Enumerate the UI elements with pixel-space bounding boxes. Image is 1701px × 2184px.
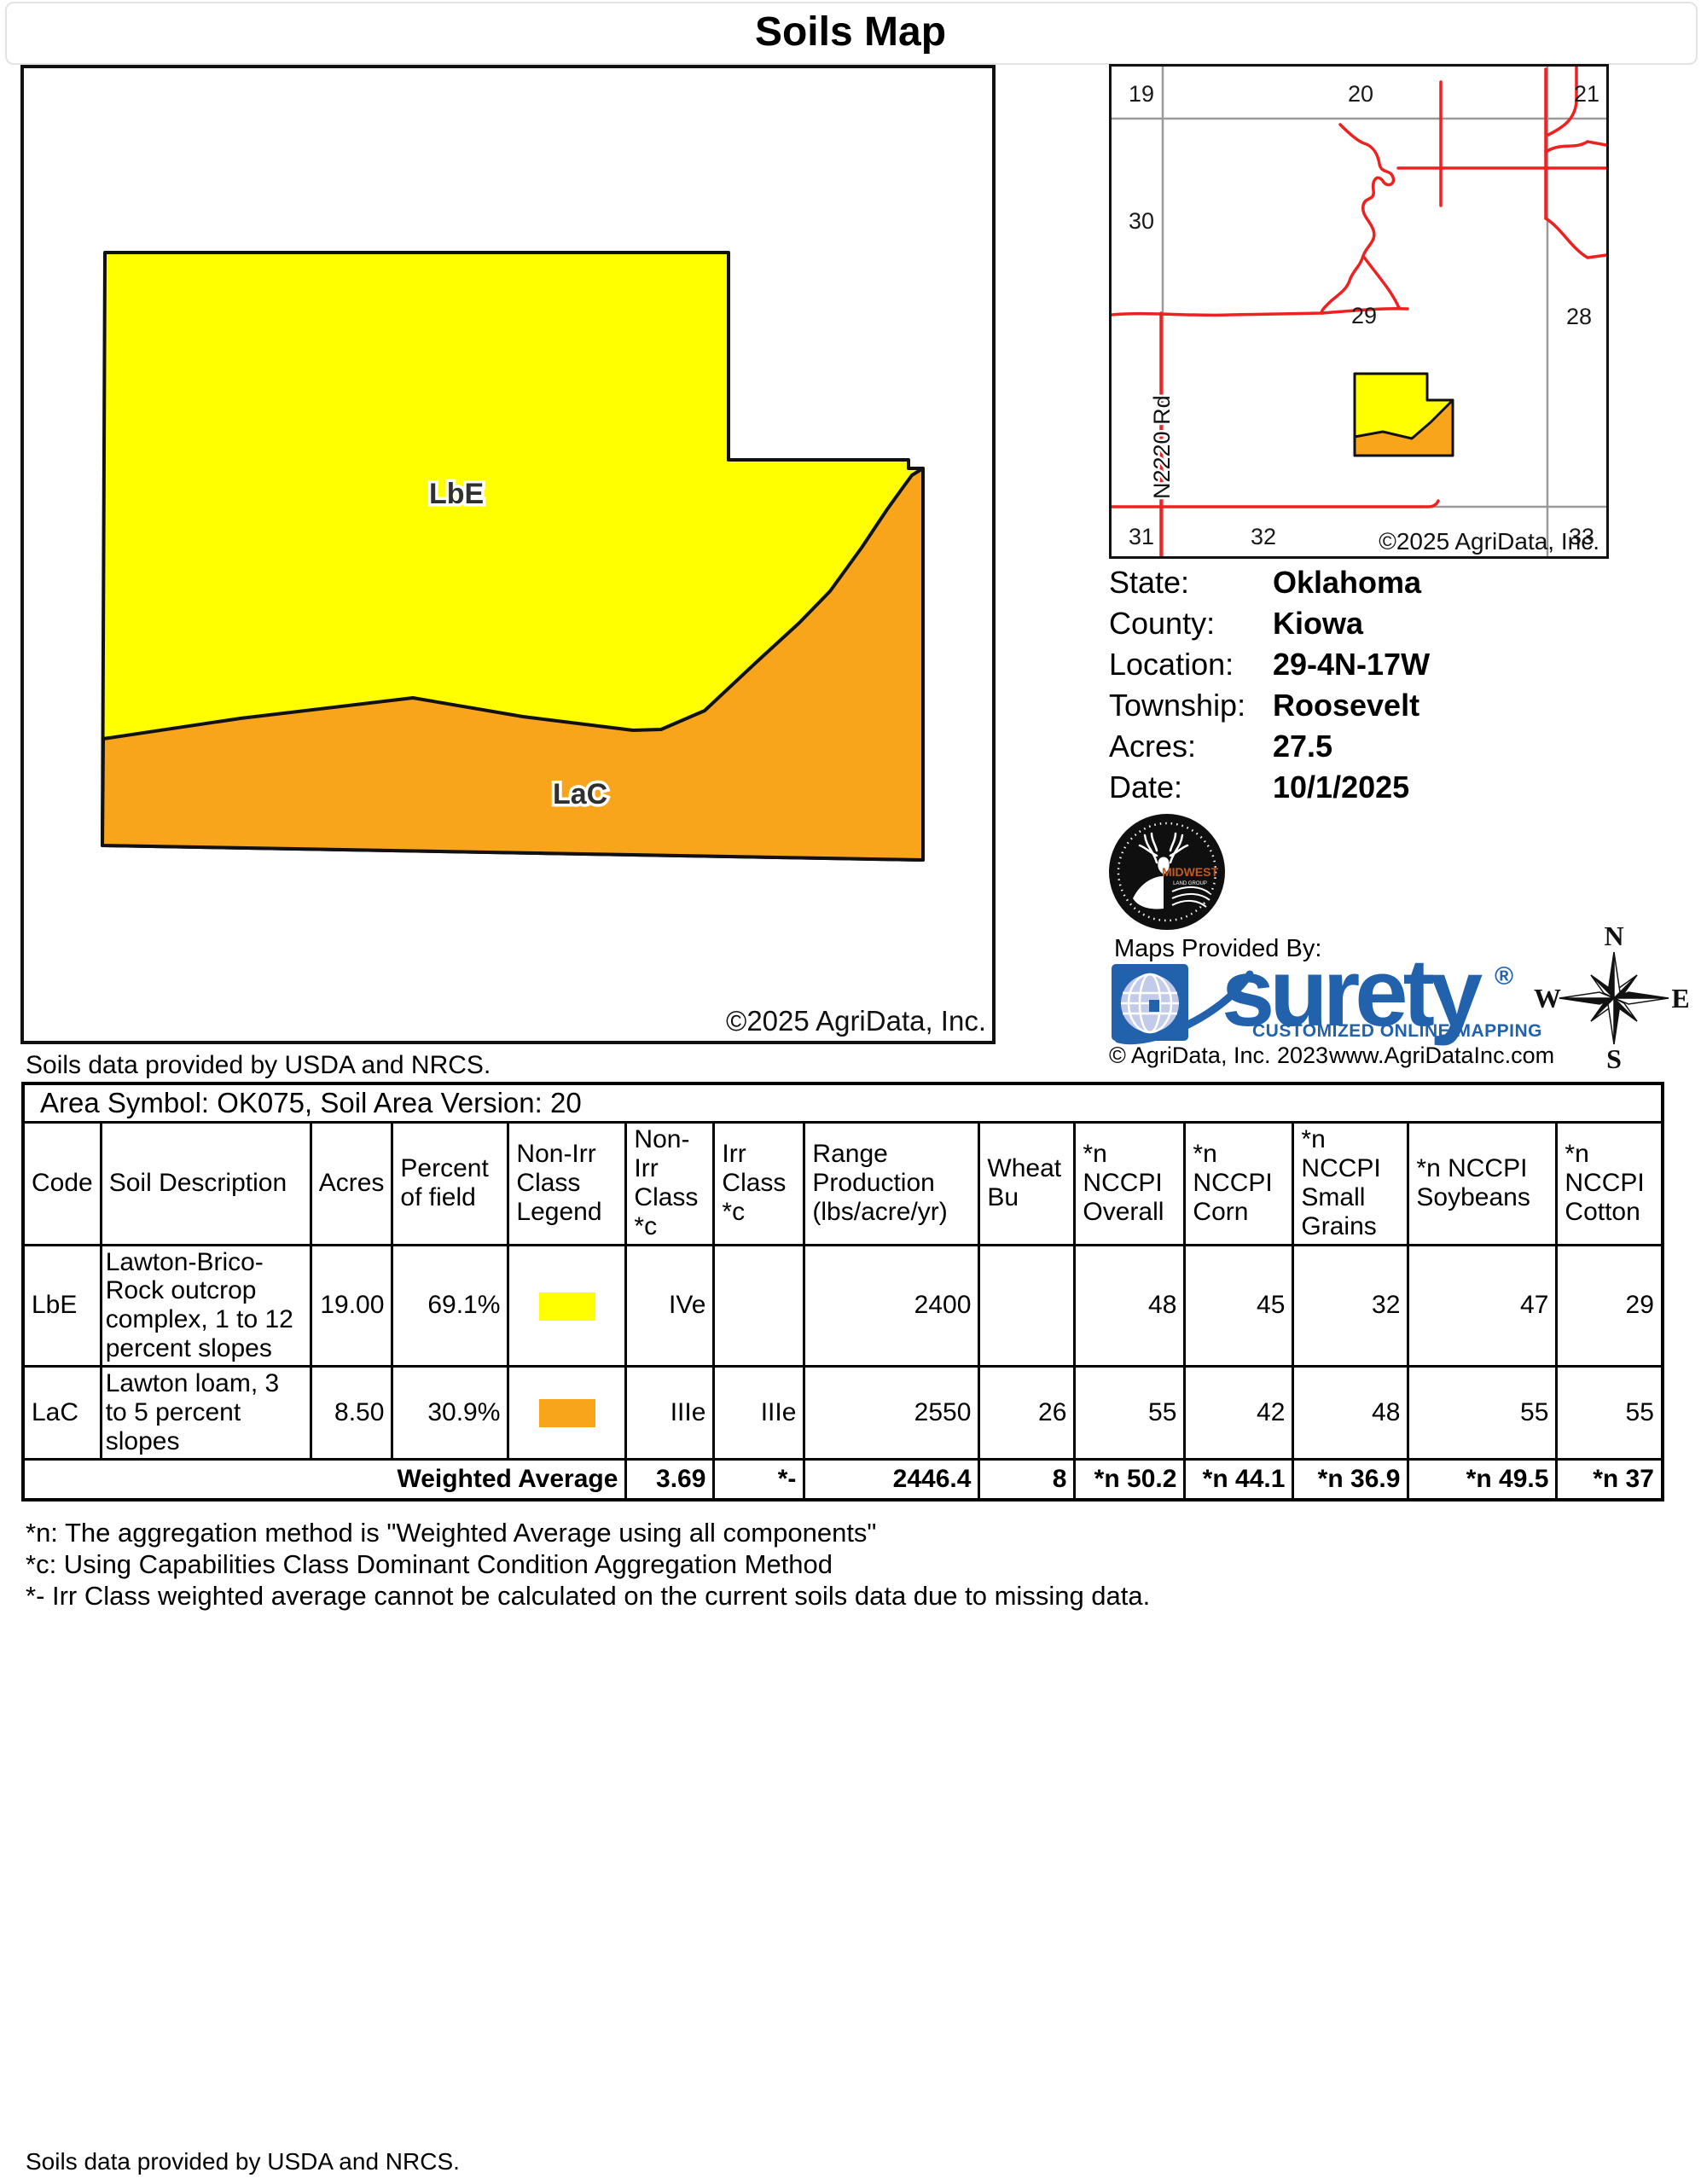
- weighted-average-label: Weighted Average: [23, 1459, 626, 1500]
- col-header-soil-description: Soil Description: [101, 1122, 311, 1245]
- legend-swatch-lac: [539, 1399, 595, 1427]
- cell-nccpi-soybeans: 47: [1408, 1245, 1557, 1367]
- col-header-percent: Percent of field: [392, 1122, 508, 1245]
- col-header-non-irr-class: Non-Irr Class *c: [626, 1122, 714, 1245]
- footnotes-block: *n: The aggregation method is "Weighted …: [26, 1517, 1150, 1612]
- cell-nccpi-small-grains: 32: [1293, 1245, 1408, 1367]
- col-header-wheat-bu: Wheat Bu: [979, 1122, 1075, 1245]
- section-21: 21: [1574, 81, 1599, 107]
- compass-w: W: [1534, 983, 1561, 1014]
- weighted-nccpi-corn: *n 44.1: [1185, 1459, 1293, 1500]
- inset-map-canvas: 19 20 21 30 29 28 31 32 33 N2220 Rd ©202…: [1112, 67, 1606, 556]
- col-header-legend: Non-Irr Class Legend: [508, 1122, 626, 1245]
- cell-code: LaC: [23, 1367, 101, 1460]
- compass-main-points: [1559, 952, 1669, 1044]
- section-19: 19: [1129, 81, 1154, 107]
- info-row-township: Township: Roosevelt: [1109, 688, 1604, 729]
- cell-nccpi-small-grains: 48: [1293, 1367, 1408, 1460]
- cell-percent: 69.1%: [392, 1245, 508, 1367]
- map-copyright: ©2025 AgriData, Inc.: [726, 1005, 986, 1037]
- weighted-average-row: Weighted Average 3.69 *- 2446.4 8 *n 50.…: [23, 1459, 1663, 1500]
- table-row-lbe: LbE Lawton-Brico-Rock outcrop complex, 1…: [23, 1245, 1663, 1367]
- col-header-code: Code: [23, 1122, 101, 1245]
- col-header-nccpi-overall: *n NCCPI Overall: [1075, 1122, 1185, 1245]
- info-label: County:: [1109, 606, 1273, 647]
- weighted-nccpi-cotton: *n 37: [1557, 1459, 1663, 1500]
- cell-non-irr-class: IIIe: [626, 1367, 714, 1460]
- col-header-range-production: Range Production (lbs/acre/yr): [804, 1122, 979, 1245]
- weighted-nccpi-overall: *n 50.2: [1075, 1459, 1185, 1500]
- weighted-wheat-bu: 8: [979, 1459, 1075, 1500]
- cell-irr-class: [714, 1245, 804, 1367]
- legend-swatch-lbe: [539, 1292, 595, 1321]
- agridata-url: www.AgriDataInc.com: [1329, 1043, 1554, 1069]
- col-header-nccpi-cotton: *n NCCPI Cotton: [1557, 1122, 1663, 1245]
- weighted-non-irr-class: 3.69: [626, 1459, 714, 1500]
- cell-percent: 30.9%: [392, 1367, 508, 1460]
- section-31: 31: [1129, 524, 1154, 549]
- section-28: 28: [1566, 304, 1592, 329]
- surety-registered-mark: ®: [1495, 962, 1513, 991]
- area-symbol-title: Area Symbol: OK075, Soil Area Version: 2…: [23, 1083, 1663, 1122]
- info-label: Acres:: [1109, 729, 1273, 770]
- soil-label-lbe: LbE: [429, 478, 484, 510]
- compass-n: N: [1604, 921, 1623, 951]
- info-row-date: Date: 10/1/2025: [1109, 770, 1604, 810]
- section-29: 29: [1351, 303, 1377, 328]
- table-row-lac: LaC Lawton loam, 3 to 5 percent slopes 8…: [23, 1367, 1663, 1460]
- info-value: 29-4N-17W: [1273, 647, 1430, 688]
- weighted-nccpi-soybeans: *n 49.5: [1408, 1459, 1557, 1500]
- info-value: Oklahoma: [1273, 565, 1421, 606]
- surety-tagline: CUSTOMIZED ONLINE MAPPING: [1252, 1021, 1542, 1042]
- col-header-nccpi-soybeans: *n NCCPI Soybeans: [1408, 1122, 1557, 1245]
- cell-description: Lawton loam, 3 to 5 percent slopes: [101, 1367, 311, 1460]
- compass-e: E: [1671, 983, 1689, 1014]
- inset-location-map: 19 20 21 30 29 28 31 32 33 N2220 Rd ©202…: [1109, 64, 1609, 559]
- info-row-location: Location: 29-4N-17W: [1109, 647, 1604, 688]
- info-label: Township:: [1109, 688, 1273, 729]
- cell-nccpi-cotton: 29: [1557, 1245, 1663, 1367]
- main-soils-map-canvas: LbE LaC ©2025 AgriData, Inc.: [24, 68, 992, 1041]
- soils-data-table: Area Symbol: OK075, Soil Area Version: 2…: [21, 1082, 1664, 1501]
- info-label: Date:: [1109, 770, 1273, 810]
- info-row-acres: Acres: 27.5: [1109, 729, 1604, 770]
- section-20: 20: [1348, 81, 1373, 107]
- road-label-n2220: N2220 Rd: [1149, 395, 1175, 499]
- section-32: 32: [1251, 524, 1276, 549]
- info-label: Location:: [1109, 647, 1273, 688]
- inset-copyright: ©2025 AgriData, Inc.: [1379, 528, 1599, 555]
- page-title: Soils Map: [0, 9, 1701, 55]
- cell-legend: [508, 1367, 626, 1460]
- col-header-irr-class: Irr Class *c: [714, 1122, 804, 1245]
- col-header-acres: Acres: [311, 1122, 392, 1245]
- cell-nccpi-corn: 42: [1185, 1367, 1293, 1460]
- soil-label-lac: LaC: [553, 778, 607, 810]
- cell-description: Lawton-Brico-Rock outcrop complex, 1 to …: [101, 1245, 311, 1367]
- midwest-logo-sub: LAND GROUP: [1173, 881, 1207, 886]
- map-attribution: Soils data provided by USDA and NRCS.: [26, 1051, 491, 1080]
- cell-wheat-bu: 26: [979, 1367, 1075, 1460]
- weighted-irr-class: *-: [714, 1459, 804, 1500]
- footnote-c: *c: Using Capabilities Class Dominant Co…: [26, 1548, 1150, 1580]
- cell-non-irr-class: IVe: [626, 1245, 714, 1367]
- cell-range-production: 2400: [804, 1245, 979, 1367]
- col-header-nccpi-small-grains: *n NCCPI Small Grains: [1293, 1122, 1408, 1245]
- info-label: State:: [1109, 565, 1273, 606]
- weighted-nccpi-small-grains: *n 36.9: [1293, 1459, 1408, 1500]
- midwest-land-group-logo: MIDWEST LAND GROUP: [1107, 813, 1227, 931]
- cell-nccpi-soybeans: 55: [1408, 1367, 1557, 1460]
- cell-nccpi-overall: 55: [1075, 1367, 1185, 1460]
- cell-nccpi-overall: 48: [1075, 1245, 1185, 1367]
- agridata-copyright: © AgriData, Inc. 2023: [1109, 1043, 1328, 1069]
- cell-nccpi-cotton: 55: [1557, 1367, 1663, 1460]
- main-soils-map: LbE LaC ©2025 AgriData, Inc.: [20, 65, 996, 1044]
- weighted-range-production: 2446.4: [804, 1459, 979, 1500]
- mini-parcel: [1355, 374, 1453, 456]
- col-header-nccpi-corn: *n NCCPI Corn: [1185, 1122, 1293, 1245]
- compass-rose: N S W E: [1529, 921, 1699, 1083]
- cell-acres: 19.00: [311, 1245, 392, 1367]
- info-value: Roosevelt: [1273, 688, 1419, 729]
- compass-s: S: [1606, 1043, 1622, 1074]
- footnote-irr: *- Irr Class weighted average cannot be …: [26, 1580, 1150, 1612]
- footnote-n: *n: The aggregation method is "Weighted …: [26, 1517, 1150, 1548]
- cell-code: LbE: [23, 1245, 101, 1367]
- info-value: 10/1/2025: [1273, 770, 1409, 810]
- cell-legend: [508, 1245, 626, 1367]
- cell-acres: 8.50: [311, 1367, 392, 1460]
- table-header-row: Code Soil Description Acres Percent of f…: [23, 1122, 1663, 1245]
- area-symbol-row: Area Symbol: OK075, Soil Area Version: 2…: [23, 1083, 1663, 1122]
- cell-range-production: 2550: [804, 1367, 979, 1460]
- midwest-logo-name: MIDWEST: [1162, 865, 1219, 879]
- section-30: 30: [1129, 208, 1154, 234]
- cell-irr-class: IIIe: [714, 1367, 804, 1460]
- info-row-county: County: Kiowa: [1109, 606, 1604, 647]
- cell-nccpi-corn: 45: [1185, 1245, 1293, 1367]
- cell-wheat-bu: [979, 1245, 1075, 1367]
- info-row-state: State: Oklahoma: [1109, 565, 1604, 606]
- location-info-block: State: Oklahoma County: Kiowa Location: …: [1109, 565, 1604, 810]
- info-value: 27.5: [1273, 729, 1332, 770]
- page-footer-attribution: Soils data provided by USDA and NRCS.: [26, 2148, 460, 2175]
- soils-map-report-page: { "page": { "title": "Soils Map", "foote…: [0, 0, 1701, 2184]
- info-value: Kiowa: [1273, 606, 1363, 647]
